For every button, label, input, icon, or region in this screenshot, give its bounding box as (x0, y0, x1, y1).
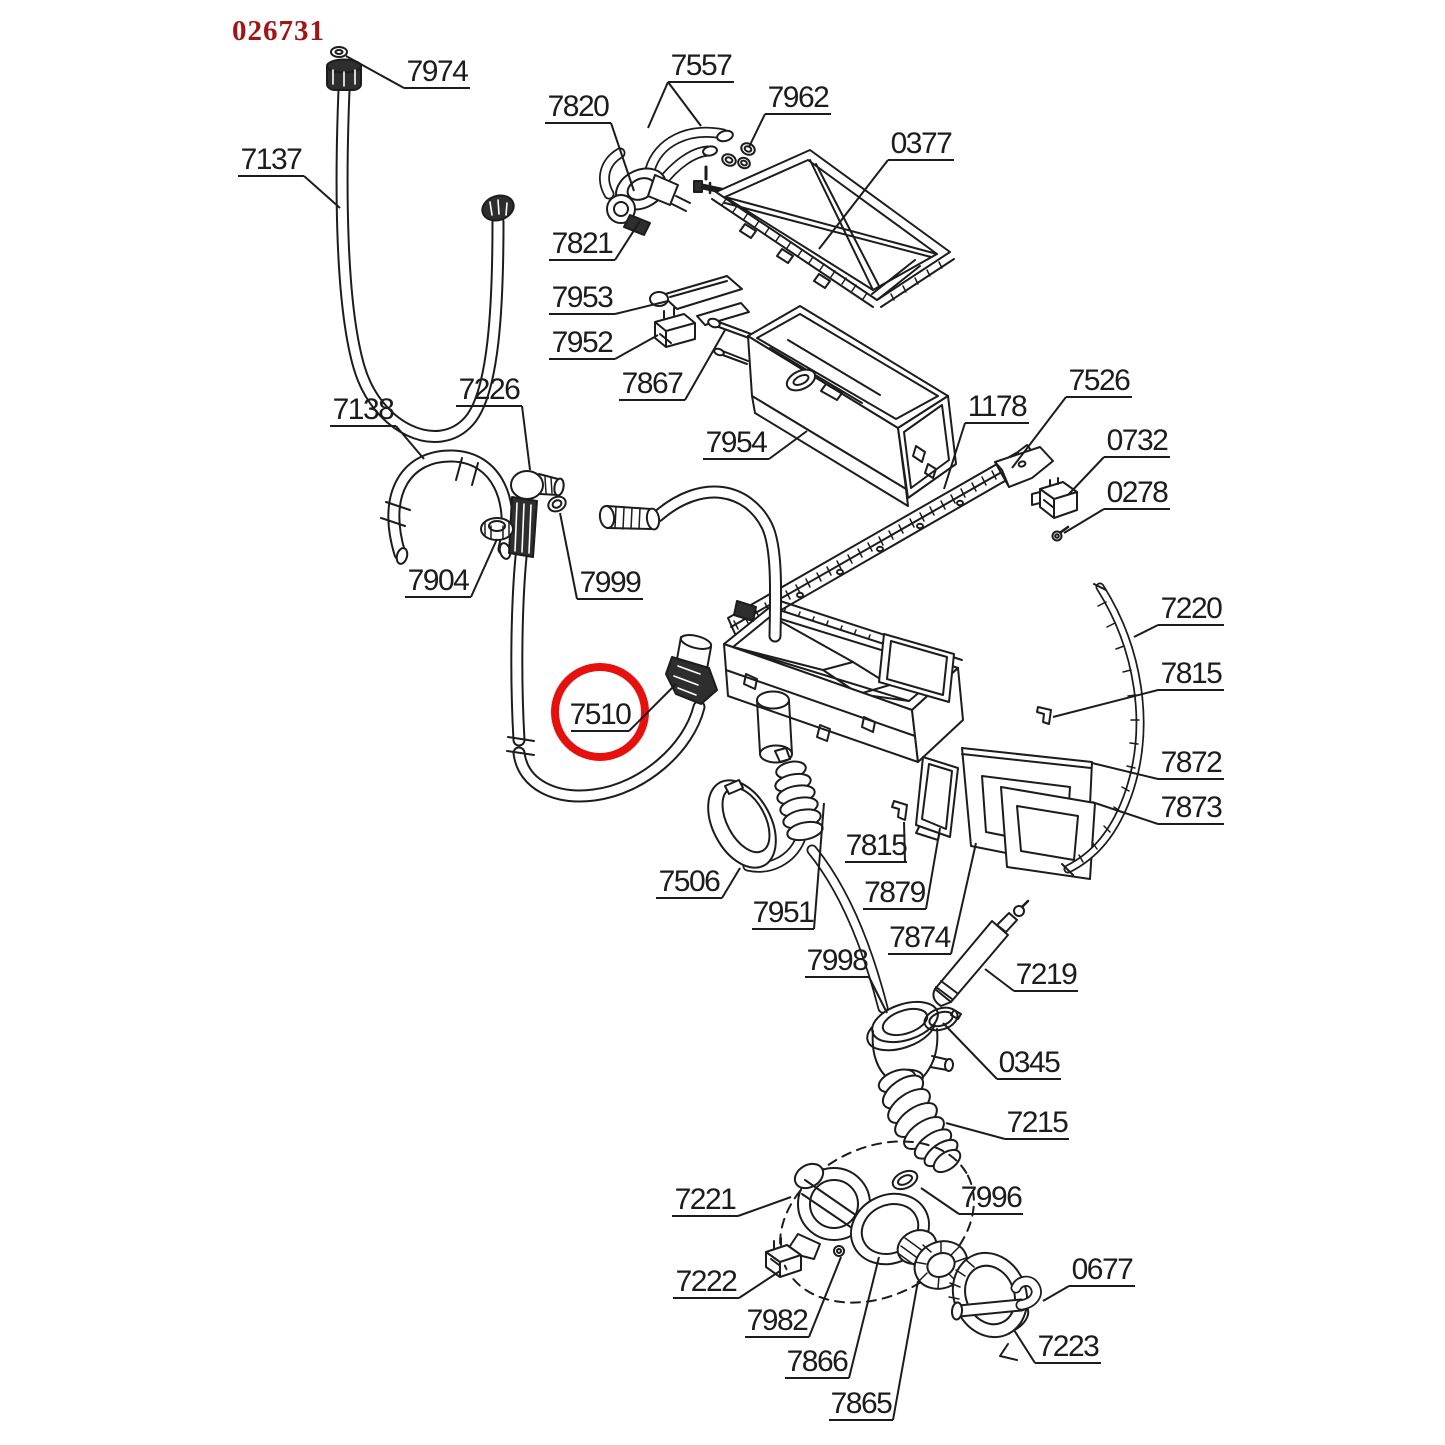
part-label-7879: 7879 (864, 876, 926, 909)
leader-line-7221 (738, 1197, 791, 1216)
part-label-7821: 7821 (552, 227, 614, 260)
leader-line-7962 (749, 114, 765, 147)
leader-line-7879 (926, 828, 940, 909)
leader-line-7865 (893, 1281, 918, 1420)
part-label-0732: 0732 (1107, 424, 1169, 457)
part-label-7953: 7953 (552, 281, 614, 314)
part-label-7951: 7951 (753, 896, 815, 929)
overflow-hose-drawing (481, 471, 717, 796)
parts-diagram-canvas: 026731 797471377820755779620377782179537… (0, 0, 1445, 1445)
part-label-7998: 7998 (807, 944, 869, 977)
part-label-7904: 7904 (408, 564, 470, 597)
leader-line-7219 (985, 969, 1014, 991)
part-label-7999: 7999 (580, 566, 642, 599)
exploded-view-artwork (327, 47, 1140, 1360)
leader-line-0677 (1043, 1286, 1069, 1301)
sump-bellows-drawing (876, 1065, 964, 1193)
part-label-7137: 7137 (241, 143, 303, 176)
leader-line-7215 (946, 1123, 1005, 1139)
part-label-0278: 0278 (1107, 476, 1169, 509)
part-label-7952: 7952 (552, 326, 614, 359)
part-label-7962: 7962 (768, 81, 830, 114)
leader-line-7557 (668, 82, 701, 126)
part-label-7506: 7506 (659, 865, 721, 898)
part-label-7974: 7974 (407, 55, 469, 88)
part-label-7865: 7865 (831, 1387, 893, 1420)
leader-line-7874 (951, 843, 976, 954)
part-label-7220: 7220 (1161, 592, 1223, 625)
part-label-7215: 7215 (1007, 1106, 1069, 1139)
leader-line-7220 (1134, 625, 1158, 637)
detergent-drawer-drawing (748, 306, 956, 506)
part-label-7526: 7526 (1069, 364, 1131, 397)
leader-line-7904 (471, 539, 497, 597)
doc-number: 026731 (232, 15, 325, 47)
leader-line-7952 (615, 335, 658, 359)
parts-diagram-page: 026731 797471377820755779620377782179537… (0, 0, 1445, 1445)
leader-line-7872 (1092, 763, 1158, 779)
top-cover-drawing (712, 150, 954, 307)
leader-line-0732 (1068, 457, 1104, 495)
part-label-7223: 7223 (1038, 1330, 1100, 1363)
leader-line-7222 (739, 1271, 780, 1298)
leader-line-7953 (615, 301, 668, 314)
inlet-valve-drawing (605, 129, 757, 235)
small-brackets-drawing (650, 276, 762, 364)
part-label-7874: 7874 (889, 921, 951, 954)
leader-line-7982 (809, 1257, 841, 1337)
leader-line-7223 (1014, 1330, 1035, 1363)
part-label-7222: 7222 (676, 1265, 738, 1298)
part-label-1178: 1178 (968, 390, 1027, 423)
part-label-7815: 7815 (846, 829, 908, 862)
part-label-7219: 7219 (1016, 958, 1078, 991)
callout-layer: 7974713778207557796203777821795379527867… (238, 49, 1224, 1420)
part-label-7867: 7867 (622, 367, 684, 400)
part-label-7815: 7815 (1161, 657, 1223, 690)
leader-line-7557 (648, 82, 668, 128)
part-label-7557: 7557 (671, 49, 733, 82)
part-label-0677: 0677 (1072, 1253, 1134, 1286)
part-label-7866: 7866 (787, 1345, 849, 1378)
part-label-0377: 0377 (891, 127, 953, 160)
leader-line-7999 (560, 513, 577, 599)
part-label-7982: 7982 (747, 1304, 809, 1337)
leader-line-7506 (722, 868, 740, 898)
leader-line-7226 (522, 406, 530, 470)
part-label-7226: 7226 (459, 373, 521, 406)
leader-line-7137 (304, 176, 340, 208)
part-label-7872: 7872 (1161, 746, 1223, 779)
part-label-0345: 0345 (999, 1046, 1061, 1079)
leader-line-7996 (921, 1188, 959, 1214)
leader-line-7866 (849, 1257, 879, 1378)
part-label-7510: 7510 (570, 698, 632, 731)
part-label-7820: 7820 (548, 90, 610, 123)
part-label-7138: 7138 (333, 393, 395, 426)
leader-line-7954 (769, 431, 807, 459)
part-label-7873: 7873 (1161, 791, 1223, 824)
part-label-7954: 7954 (706, 426, 768, 459)
part-label-7996: 7996 (961, 1181, 1023, 1214)
part-label-7221: 7221 (675, 1183, 737, 1216)
